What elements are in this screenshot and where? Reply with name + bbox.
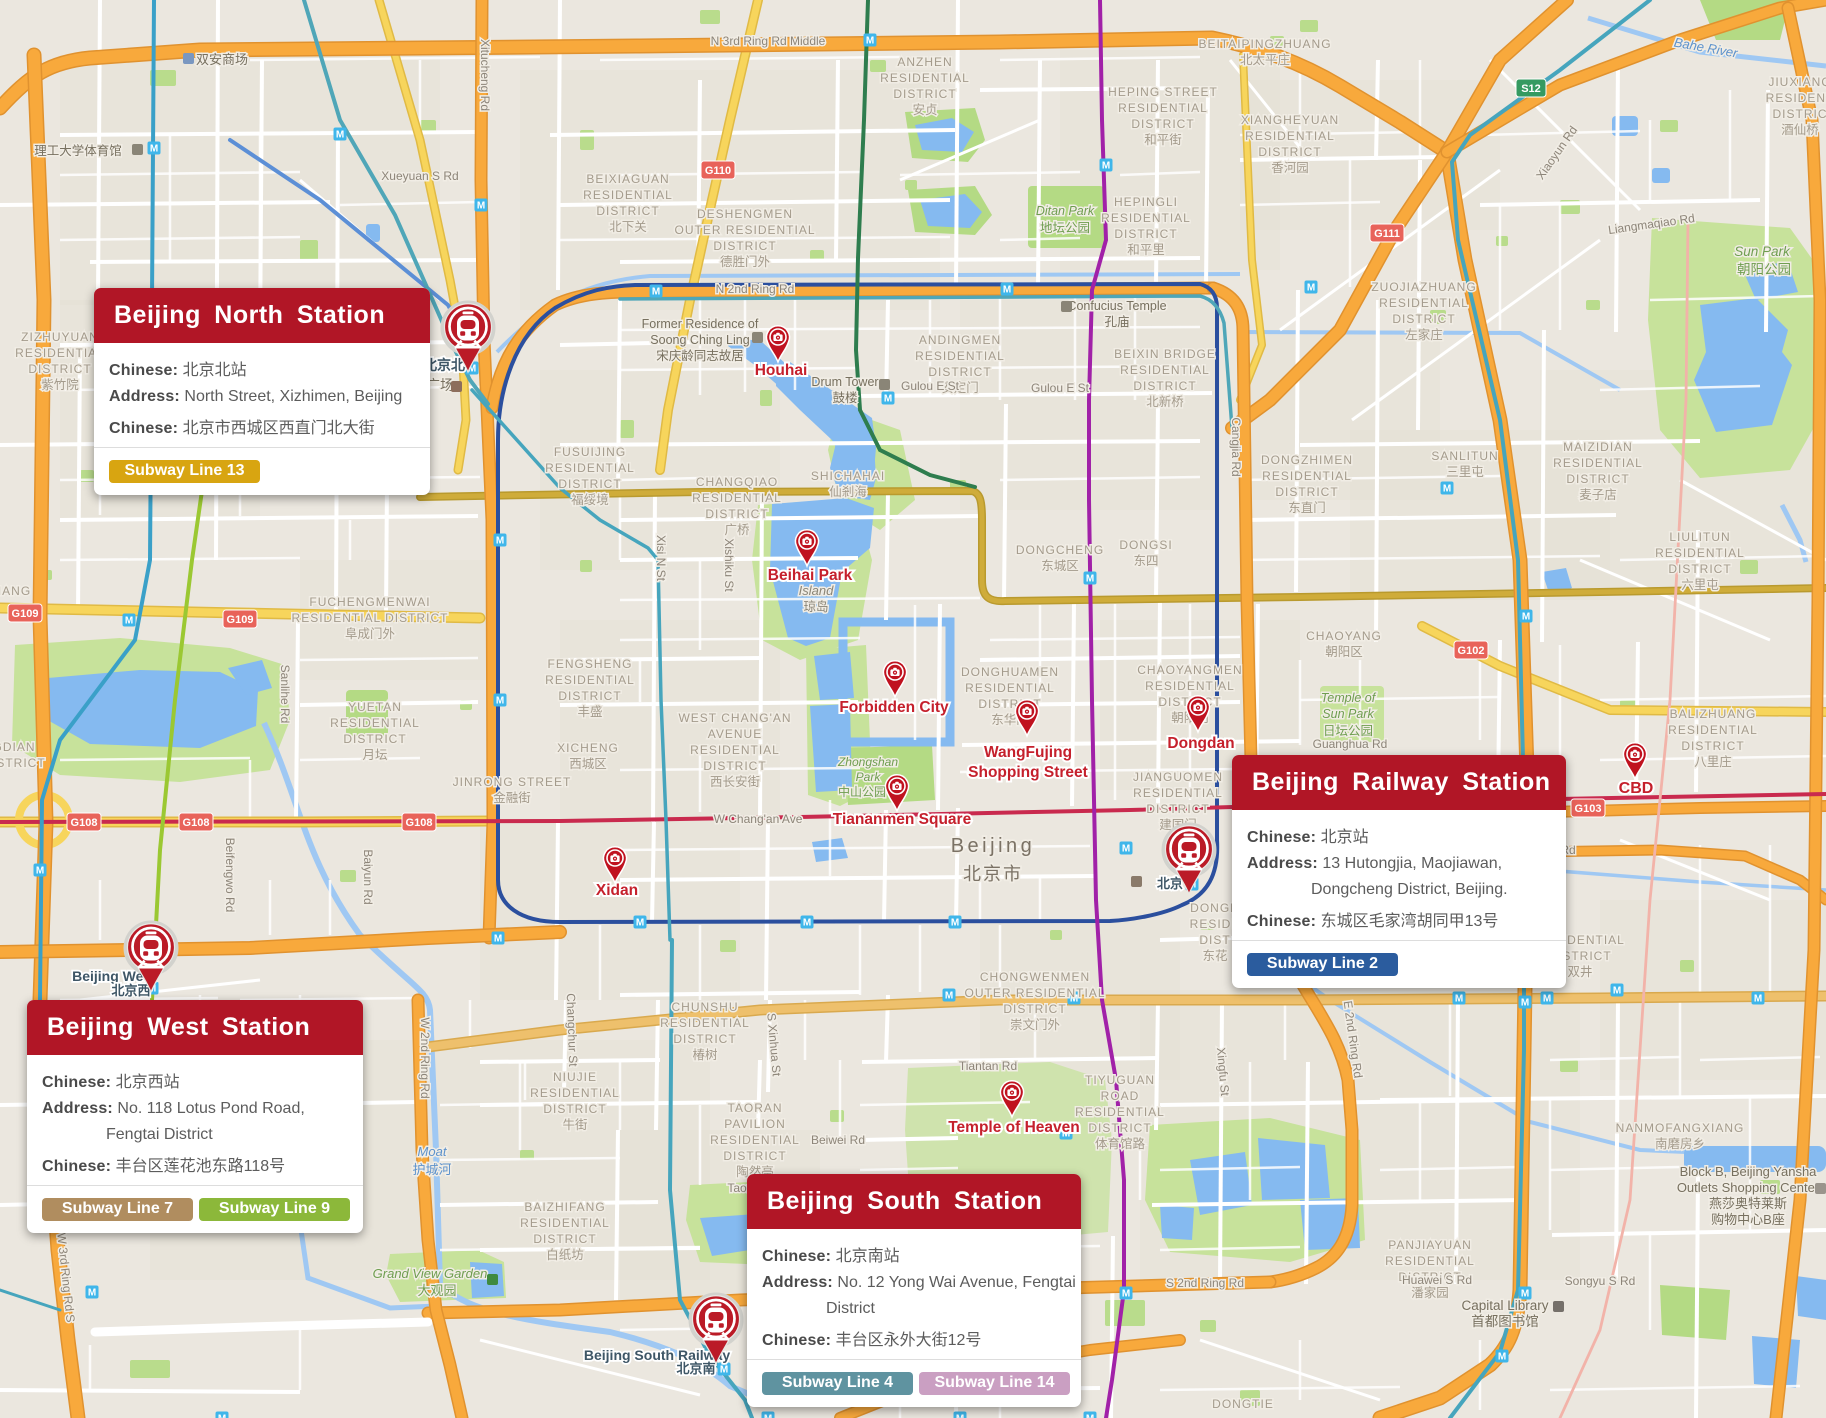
svg-text:M: M xyxy=(1122,844,1130,855)
svg-text:福绥境: 福绥境 xyxy=(571,492,609,507)
svg-text:G110: G110 xyxy=(705,165,731,177)
svg-text:M: M xyxy=(125,616,133,627)
svg-text:护城河: 护城河 xyxy=(412,1162,451,1177)
svg-text:M: M xyxy=(1307,283,1315,294)
svg-text:Former Residence of: Former Residence of xyxy=(642,317,759,331)
svg-text:ROAD: ROAD xyxy=(1101,1089,1140,1103)
svg-text:左家庄: 左家庄 xyxy=(1405,327,1443,342)
svg-text:RESIDENTIAL: RESIDENTIAL xyxy=(692,491,782,505)
svg-text:DISTRICT: DISTRICT xyxy=(1275,485,1338,499)
svg-text:DISTRICT: DISTRICT xyxy=(1133,379,1196,393)
svg-text:XICHENG: XICHENG xyxy=(557,741,619,755)
svg-text:M: M xyxy=(1754,994,1762,1005)
svg-text:Beijing: Beijing xyxy=(951,835,1036,857)
svg-text:理工大学体育馆: 理工大学体育馆 xyxy=(34,143,122,158)
svg-text:DISTRICT: DISTRICT xyxy=(1258,145,1321,159)
svg-text:DISTRICT: DISTRICT xyxy=(0,756,46,770)
svg-text:东花: 东花 xyxy=(1202,948,1227,963)
svg-text:M: M xyxy=(1102,161,1110,172)
svg-text:M: M xyxy=(1443,484,1451,495)
svg-text:NIUJIE: NIUJIE xyxy=(553,1070,597,1084)
svg-text:Beifengwo Rd: Beifengwo Rd xyxy=(223,838,237,913)
svg-text:东直门: 东直门 xyxy=(1288,500,1326,515)
svg-text:S 2nd Ring Rd: S 2nd Ring Rd xyxy=(1166,1276,1244,1290)
svg-text:紫竹院: 紫竹院 xyxy=(41,378,79,392)
svg-text:北新桥: 北新桥 xyxy=(1146,394,1184,409)
svg-text:Tiananmen Square: Tiananmen Square xyxy=(833,811,972,828)
svg-text:南磨房乡: 南磨房乡 xyxy=(1655,1136,1705,1151)
svg-text:RESIDENTIAL: RESIDENTIAL xyxy=(1553,456,1643,470)
svg-text:北京南: 北京南 xyxy=(676,1361,715,1376)
svg-text:Songyu S Rd: Songyu S Rd xyxy=(1565,1274,1636,1288)
svg-text:牛街: 牛街 xyxy=(562,1117,587,1132)
svg-text:M: M xyxy=(951,918,959,929)
svg-text:丰盛: 丰盛 xyxy=(577,704,602,719)
svg-text:CBD: CBD xyxy=(1619,780,1654,797)
svg-text:RESIDENTIAL: RESIDENTIAL xyxy=(1118,101,1208,115)
svg-text:Park: Park xyxy=(856,770,882,784)
svg-text:RESIDENTIAL: RESIDENTIAL xyxy=(1655,546,1745,560)
svg-text:DISTRICT: DISTRICT xyxy=(1088,1121,1151,1135)
svg-text:M: M xyxy=(1086,574,1094,585)
svg-text:和平街: 和平街 xyxy=(1144,133,1182,147)
svg-text:DISTRICT: DISTRICT xyxy=(705,507,768,521)
svg-text:DISTRICT: DISTRICT xyxy=(1668,562,1731,576)
svg-text:FUSUIJING: FUSUIJING xyxy=(554,445,626,459)
svg-text:M: M xyxy=(496,696,504,707)
svg-text:DISTRICT: DISTRICT xyxy=(543,1102,606,1116)
svg-text:Xitucheng Rd: Xitucheng Rd xyxy=(478,39,492,111)
svg-text:M: M xyxy=(1543,994,1551,1005)
svg-text:北京: 北京 xyxy=(1157,876,1183,891)
svg-text:M: M xyxy=(336,130,344,141)
svg-text:宋庆龄同志故居: 宋庆龄同志故居 xyxy=(656,348,744,363)
svg-text:DISTRICT: DISTRICT xyxy=(558,477,621,491)
svg-text:M: M xyxy=(636,918,644,929)
svg-text:G103: G103 xyxy=(1575,803,1602,815)
svg-text:Houhai: Houhai xyxy=(755,362,808,379)
svg-text:M: M xyxy=(866,36,874,47)
svg-text:DONGCHENG: DONGCHENG xyxy=(1016,543,1104,557)
svg-text:DONGTIE: DONGTIE xyxy=(1212,1397,1274,1411)
svg-text:DISTRICT: DISTRICT xyxy=(1131,117,1194,131)
svg-text:G102: G102 xyxy=(1458,645,1485,657)
svg-text:朝阳区: 朝阳区 xyxy=(1325,645,1363,659)
svg-text:DISTRICT: DISTRICT xyxy=(713,239,776,253)
svg-text:阜成门外: 阜成门外 xyxy=(345,626,396,641)
svg-text:RESIDENTIAL: RESIDENTIAL xyxy=(1668,723,1758,737)
svg-text:RESIDENTIAL: RESIDENTIAL xyxy=(690,743,780,757)
svg-text:Confucius Temple: Confucius Temple xyxy=(1067,299,1166,313)
svg-text:北太平庄: 北太平庄 xyxy=(1240,52,1290,67)
svg-text:GDIAN: GDIAN xyxy=(0,740,36,754)
svg-text:DISTRICT: DISTRICT xyxy=(596,204,659,218)
svg-text:RESIDENTIAL: RESIDENTIAL xyxy=(1379,296,1469,310)
svg-text:DISTRICT: DISTRICT xyxy=(533,1232,596,1246)
svg-text:G109: G109 xyxy=(227,614,254,626)
svg-text:双安商场: 双安商场 xyxy=(196,52,248,67)
svg-text:M: M xyxy=(1522,612,1530,623)
svg-text:HEPINGLI: HEPINGLI xyxy=(1114,195,1178,209)
svg-text:DISTRICT: DISTRICT xyxy=(1146,802,1209,816)
svg-text:AVENUE: AVENUE xyxy=(708,727,762,741)
svg-text:西长安街: 西长安街 xyxy=(710,774,760,789)
svg-text:Gulou E St: Gulou E St xyxy=(1031,381,1090,395)
svg-text:和平里: 和平里 xyxy=(1127,243,1165,257)
svg-text:M: M xyxy=(218,1414,226,1418)
svg-text:RESIDENTIAL: RESIDENTIAL xyxy=(530,1086,620,1100)
svg-text:CHUNSHU: CHUNSHU xyxy=(672,1000,739,1014)
svg-text:M: M xyxy=(36,866,44,877)
svg-text:Island: Island xyxy=(799,583,834,598)
svg-text:鼓楼: 鼓楼 xyxy=(832,390,857,405)
svg-text:N 2nd Ring Rd: N 2nd Ring Rd xyxy=(716,282,795,296)
svg-text:M: M xyxy=(494,934,502,945)
svg-text:Xueyuan S Rd: Xueyuan S Rd xyxy=(381,169,458,183)
svg-text:G108: G108 xyxy=(406,817,433,829)
svg-text:DISTRICT: DISTRICT xyxy=(673,1032,736,1046)
svg-text:DIST: DIST xyxy=(1199,933,1230,947)
svg-text:中山公园: 中山公园 xyxy=(838,784,886,799)
svg-text:Beiwei Rd: Beiwei Rd xyxy=(811,1133,865,1147)
svg-text:M: M xyxy=(803,918,811,929)
svg-text:JINRONG STREET: JINRONG STREET xyxy=(453,775,572,789)
svg-text:北京市: 北京市 xyxy=(963,864,1023,884)
svg-text:Xisi N St: Xisi N St xyxy=(654,535,668,582)
svg-text:OUTER RESIDENTIAL: OUTER RESIDENTIAL xyxy=(964,986,1105,1000)
svg-text:RESIDENT: RESIDENT xyxy=(1766,91,1826,105)
svg-text:YUETAN: YUETAN xyxy=(348,700,402,714)
svg-text:孔庙: 孔庙 xyxy=(1104,315,1129,329)
svg-text:W 2nd Ring Rd: W 2nd Ring Rd xyxy=(418,1017,432,1098)
svg-text:广场: 广场 xyxy=(426,377,454,393)
svg-text:仙剎海: 仙剎海 xyxy=(829,484,867,499)
svg-text:金融街: 金融街 xyxy=(493,790,531,805)
svg-text:NANMOFANGXIANG: NANMOFANGXIANG xyxy=(1616,1121,1745,1135)
svg-text:RESIDENTIAL: RESIDENTIAL xyxy=(545,461,635,475)
svg-text:Xishiku St: Xishiku St xyxy=(722,538,736,592)
svg-text:G108: G108 xyxy=(71,817,98,829)
svg-text:酒仙桥: 酒仙桥 xyxy=(1781,123,1819,137)
svg-text:WangFujing: WangFujing xyxy=(984,744,1072,761)
svg-text:日坛公园: 日坛公园 xyxy=(1323,724,1373,738)
svg-text:Huawei S Rd: Huawei S Rd xyxy=(1402,1273,1472,1287)
svg-text:RESIDENTIAL: RESIDENTIAL xyxy=(880,71,970,85)
svg-text:广桥: 广桥 xyxy=(724,523,750,537)
svg-text:Sun Park: Sun Park xyxy=(1734,244,1791,259)
svg-text:M: M xyxy=(764,1414,772,1418)
svg-text:Baiyun Rd: Baiyun Rd xyxy=(361,849,375,904)
svg-text:WEST CHANG'AN: WEST CHANG'AN xyxy=(678,711,791,725)
svg-text:M: M xyxy=(150,144,158,155)
svg-text:东四: 东四 xyxy=(1133,554,1158,568)
svg-text:燕莎奥特莱斯: 燕莎奥特莱斯 xyxy=(1709,1196,1787,1211)
svg-text:Temple of Heaven: Temple of Heaven xyxy=(948,1119,1080,1136)
svg-text:BEITAIPINGZHUANG: BEITAIPINGZHUANG xyxy=(1198,37,1331,51)
svg-text:TAORAN: TAORAN xyxy=(727,1101,782,1115)
svg-text:DONGZHIMEN: DONGZHIMEN xyxy=(1261,453,1353,467)
svg-text:DISTRIC: DISTRIC xyxy=(1773,107,1826,121)
svg-text:CHAOYANGMEN: CHAOYANGMEN xyxy=(1137,663,1242,677)
svg-text:ANDINGMEN: ANDINGMEN xyxy=(919,333,1001,347)
svg-text:RESIDENTIAL: RESIDENTIAL xyxy=(520,1216,610,1230)
svg-text:DISTRICT: DISTRICT xyxy=(703,759,766,773)
svg-text:朝阳公园: 朝阳公园 xyxy=(1737,262,1791,277)
svg-text:JIUXIANQ: JIUXIANQ xyxy=(1768,75,1826,89)
svg-text:CHANGQIAO: CHANGQIAO xyxy=(696,475,778,489)
svg-text:DISTRICT: DISTRICT xyxy=(1681,739,1744,753)
svg-text:西城区: 西城区 xyxy=(569,757,607,771)
svg-text:大观园: 大观园 xyxy=(417,1283,456,1298)
svg-text:M: M xyxy=(1003,285,1011,296)
svg-text:Moat: Moat xyxy=(418,1144,448,1159)
svg-text:M: M xyxy=(652,287,660,298)
svg-text:RESIDENTIAL: RESIDENTIAL xyxy=(1262,469,1352,483)
svg-text:JIANGUOMEN: JIANGUOMEN xyxy=(1133,770,1223,784)
svg-text:BAIZHIFANG: BAIZHIFANG xyxy=(524,1200,605,1214)
svg-text:Xidan: Xidan xyxy=(596,882,638,899)
svg-text:安贞: 安贞 xyxy=(912,102,937,117)
svg-text:BALIZHUANG: BALIZHUANG xyxy=(1670,707,1757,721)
svg-text:M: M xyxy=(884,394,892,405)
svg-text:香河园: 香河园 xyxy=(1271,161,1309,175)
svg-text:白纸坊: 白纸坊 xyxy=(546,1247,584,1262)
svg-text:DISTRICT: DISTRICT xyxy=(928,365,991,379)
svg-text:PANJIAYUAN: PANJIAYUAN xyxy=(1388,1238,1472,1252)
svg-text:M: M xyxy=(1122,1289,1130,1300)
svg-text:北下关: 北下关 xyxy=(609,220,647,234)
svg-text:椿树: 椿树 xyxy=(692,1047,717,1062)
svg-text:DONGHUAMEN: DONGHUAMEN xyxy=(961,665,1059,679)
svg-text:Outlets Shopping Center: Outlets Shopping Center xyxy=(1677,1180,1820,1195)
svg-text:Ditan Park: Ditan Park xyxy=(1036,204,1095,218)
svg-text:G109: G109 xyxy=(12,608,39,620)
svg-text:崇文门外: 崇文门外 xyxy=(1010,1017,1061,1032)
svg-text:Sanlihe Rd: Sanlihe Rd xyxy=(278,665,292,724)
svg-text:DISTRICT: DISTRICT xyxy=(1566,472,1629,486)
svg-text:DISTRICT: DISTRICT xyxy=(558,689,621,703)
svg-text:M: M xyxy=(477,201,485,212)
svg-text:DISTRICT: DISTRICT xyxy=(893,87,956,101)
svg-text:G111: G111 xyxy=(1374,228,1400,240)
svg-text:RESIDENTIAL: RESIDENTIAL xyxy=(1101,211,1191,225)
svg-text:RESIDENTIAL: RESIDENTIAL xyxy=(1245,129,1335,143)
svg-text:FUCHENGMENWAI: FUCHENGMENWAI xyxy=(309,595,430,609)
svg-text:HEPING STREET: HEPING STREET xyxy=(1108,85,1218,99)
svg-text:ANZHEN: ANZHEN xyxy=(897,55,952,69)
svg-text:麦子店: 麦子店 xyxy=(1579,488,1617,502)
svg-text:M: M xyxy=(1613,986,1621,997)
svg-text:RESIDENTIAL: RESIDENTIAL xyxy=(710,1133,800,1147)
svg-text:RESIDENTIAL: RESIDENTIAL xyxy=(330,716,420,730)
svg-text:M: M xyxy=(1455,994,1463,1005)
svg-text:潘家园: 潘家园 xyxy=(1411,1285,1449,1300)
svg-text:DESHENGMEN: DESHENGMEN xyxy=(697,207,793,221)
svg-text:首都图书馆: 首都图书馆 xyxy=(1471,1314,1539,1329)
svg-text:XIANGHEYUAN: XIANGHEYUAN xyxy=(1241,113,1339,127)
svg-text:Dongdan: Dongdan xyxy=(1167,735,1234,752)
svg-text:Drum Tower: Drum Tower xyxy=(811,375,878,389)
svg-text:Block B, Beijing Yansha: Block B, Beijing Yansha xyxy=(1680,1164,1818,1179)
svg-text:DISTRICT: DISTRICT xyxy=(723,1149,786,1163)
svg-text:RESIDENTIAL: RESIDENTIAL xyxy=(545,673,635,687)
svg-text:ZUOJIAZHUANG: ZUOJIAZHUANG xyxy=(1371,280,1476,294)
svg-text:M: M xyxy=(1521,998,1529,1009)
svg-text:购物中心B座: 购物中心B座 xyxy=(1711,1212,1785,1227)
svg-text:TIYUGUAN: TIYUGUAN xyxy=(1085,1073,1155,1087)
svg-text:琼岛: 琼岛 xyxy=(803,599,828,614)
svg-text:Gulou E St: Gulou E St xyxy=(901,379,960,393)
svg-text:Temple of: Temple of xyxy=(1321,691,1377,705)
svg-text:DONGSI: DONGSI xyxy=(1119,538,1172,552)
svg-text:FENGSHENG: FENGSHENG xyxy=(547,657,632,671)
svg-text:LIULITUN: LIULITUN xyxy=(1669,530,1730,544)
svg-text:Shopping Street: Shopping Street xyxy=(968,764,1088,781)
svg-text:RESIDENTIAL: RESIDENTIAL xyxy=(583,188,673,202)
svg-text:G108: G108 xyxy=(183,817,210,829)
svg-text:北京西: 北京西 xyxy=(111,983,150,998)
svg-text:RESIDENTIAL: RESIDENTIAL xyxy=(1133,786,1223,800)
svg-text:Soong Ching Ling: Soong Ching Ling xyxy=(650,333,749,347)
svg-text:RESIDENTIAL: RESIDENTIAL xyxy=(915,349,1005,363)
svg-text:RESIDENTIAL DISTRICT: RESIDENTIAL DISTRICT xyxy=(292,611,449,625)
svg-text:M: M xyxy=(1498,1352,1506,1363)
svg-text:东城区: 东城区 xyxy=(1041,559,1079,573)
svg-text:DISTRICT: DISTRICT xyxy=(1003,1002,1066,1016)
svg-text:Zhongshan: Zhongshan xyxy=(837,755,898,769)
svg-text:DISTRICT: DISTRICT xyxy=(343,732,406,746)
svg-text:SHICHAHAI: SHICHAHAI xyxy=(811,469,885,483)
svg-text:BEIXIN BRIDGE: BEIXIN BRIDGE xyxy=(1114,347,1216,361)
svg-text:DISTRICT: DISTRICT xyxy=(28,362,91,376)
svg-text:M: M xyxy=(956,1414,964,1418)
svg-text:RESIDENTIAL: RESIDENTIAL xyxy=(1120,363,1210,377)
svg-text:Tiantan Rd: Tiantan Rd xyxy=(959,1059,1017,1073)
svg-text:八里庄: 八里庄 xyxy=(1694,754,1732,769)
svg-text:RESIDENTIAL: RESIDENTIAL xyxy=(1075,1105,1165,1119)
svg-text:Cangjia Rd: Cangjia Rd xyxy=(1229,417,1243,476)
svg-text:M: M xyxy=(945,991,953,1002)
svg-text:W Chang'an Ave: W Chang'an Ave xyxy=(714,812,803,826)
svg-text:RESIDENTIAL: RESIDENTIAL xyxy=(965,681,1055,695)
svg-text:CHAOYANG: CHAOYANG xyxy=(1306,629,1382,643)
svg-text:六里屯: 六里屯 xyxy=(1681,578,1719,592)
svg-text:Forbidden City: Forbidden City xyxy=(839,699,949,716)
svg-text:DISTRICT: DISTRICT xyxy=(1114,227,1177,241)
svg-text:M: M xyxy=(88,1288,96,1299)
svg-text:N 3rd Ring Rd Middle: N 3rd Ring Rd Middle xyxy=(711,34,826,48)
svg-text:SANLITUN: SANLITUN xyxy=(1431,449,1498,463)
svg-text:Beihai Park: Beihai Park xyxy=(768,567,853,584)
svg-text:Grand View Garden: Grand View Garden xyxy=(373,1266,488,1281)
svg-text:RESIDENTIAL: RESIDENTIAL xyxy=(15,346,105,360)
svg-text:地坛公园: 地坛公园 xyxy=(1040,221,1090,235)
svg-text:三里屯: 三里屯 xyxy=(1446,465,1484,479)
svg-text:双井: 双井 xyxy=(1567,965,1592,979)
svg-text:Capital Library: Capital Library xyxy=(1461,1298,1548,1313)
svg-text:RESIDENTIAL: RESIDENTIAL xyxy=(1385,1254,1475,1268)
svg-text:M: M xyxy=(1086,1414,1094,1418)
svg-text:Changchur St: Changchur St xyxy=(564,993,581,1067)
svg-text:RESIDENTIAL: RESIDENTIAL xyxy=(1145,679,1235,693)
svg-text:M: M xyxy=(720,1365,728,1376)
svg-text:PAVILION: PAVILION xyxy=(724,1117,786,1131)
svg-text:DISTRICT: DISTRICT xyxy=(1392,312,1455,326)
svg-text:月坛: 月坛 xyxy=(362,748,387,762)
svg-text:德胜门外: 德胜门外 xyxy=(720,254,771,269)
svg-text:XIANG: XIANG xyxy=(0,584,31,598)
svg-text:RESIDENTIAL: RESIDENTIAL xyxy=(660,1016,750,1030)
svg-text:Sun Park: Sun Park xyxy=(1322,707,1374,721)
svg-text:OUTER RESIDENTIAL: OUTER RESIDENTIAL xyxy=(674,223,815,237)
svg-text:S12: S12 xyxy=(1521,83,1541,95)
svg-text:M: M xyxy=(496,536,504,547)
svg-text:ZIZHUYUAN: ZIZHUYUAN xyxy=(21,330,99,344)
svg-text:CHONGWENMEN: CHONGWENMEN xyxy=(980,970,1090,984)
svg-text:BEIXIAGUAN: BEIXIAGUAN xyxy=(586,172,669,186)
svg-text:Guanghua Rd: Guanghua Rd xyxy=(1313,737,1388,751)
svg-text:MAIZIDIAN: MAIZIDIAN xyxy=(1563,440,1633,454)
svg-text:体育馆路: 体育馆路 xyxy=(1095,1136,1146,1151)
